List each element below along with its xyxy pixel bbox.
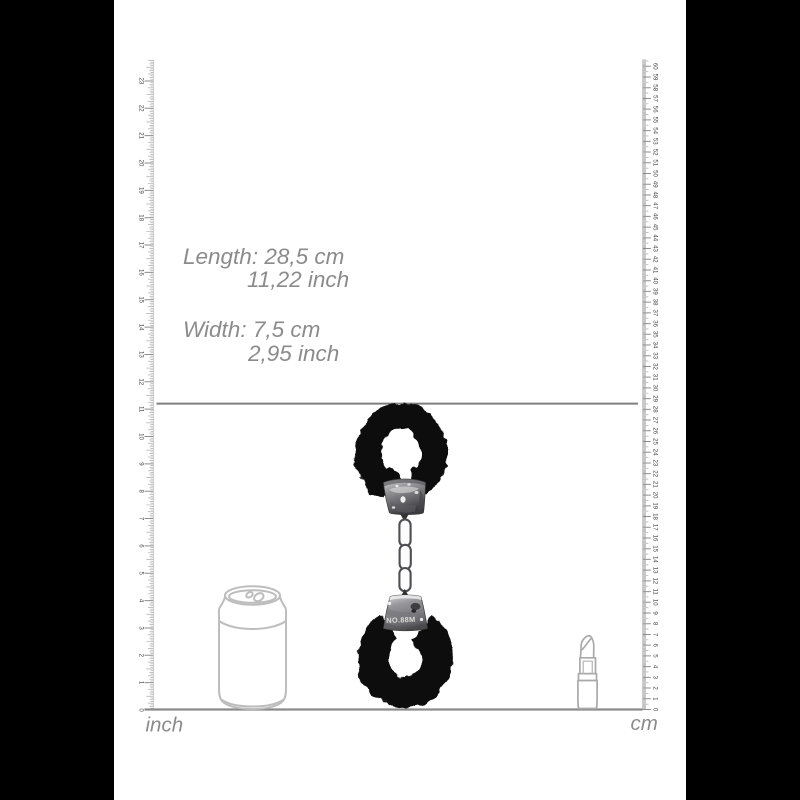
svg-text:12: 12 bbox=[651, 578, 658, 585]
svg-text:NO.88M: NO.88M bbox=[386, 615, 416, 625]
svg-text:22: 22 bbox=[138, 105, 145, 112]
svg-text:20: 20 bbox=[138, 160, 145, 167]
svg-text:52: 52 bbox=[651, 149, 658, 156]
svg-text:42: 42 bbox=[651, 256, 658, 263]
svg-text:54: 54 bbox=[651, 127, 658, 134]
svg-text:17: 17 bbox=[651, 524, 658, 531]
svg-text:28: 28 bbox=[651, 406, 658, 413]
svg-text:inch: inch bbox=[146, 714, 184, 737]
svg-text:51: 51 bbox=[651, 159, 658, 166]
svg-text:31: 31 bbox=[651, 374, 658, 381]
svg-text:59: 59 bbox=[651, 74, 658, 81]
svg-text:34: 34 bbox=[651, 342, 658, 349]
svg-text:55: 55 bbox=[651, 117, 658, 124]
svg-text:37: 37 bbox=[651, 310, 658, 317]
svg-text:11,22 inch: 11,22 inch bbox=[247, 267, 349, 292]
svg-text:48: 48 bbox=[651, 192, 658, 199]
svg-text:58: 58 bbox=[651, 84, 658, 91]
svg-text:14: 14 bbox=[651, 556, 658, 563]
svg-text:22: 22 bbox=[651, 470, 658, 477]
svg-text:53: 53 bbox=[651, 138, 658, 145]
svg-text:Length: 28,5 cm: Length: 28,5 cm bbox=[183, 244, 344, 269]
svg-text:12: 12 bbox=[138, 378, 145, 385]
svg-text:21: 21 bbox=[651, 481, 658, 488]
svg-text:16: 16 bbox=[651, 535, 658, 542]
svg-text:cm: cm bbox=[631, 712, 658, 735]
svg-text:60: 60 bbox=[651, 63, 658, 70]
svg-text:25: 25 bbox=[651, 438, 658, 445]
svg-text:14: 14 bbox=[138, 324, 145, 331]
svg-text:57: 57 bbox=[651, 95, 658, 102]
svg-text:50: 50 bbox=[651, 170, 658, 177]
svg-text:26: 26 bbox=[651, 427, 658, 434]
svg-text:43: 43 bbox=[651, 245, 658, 252]
svg-text:41: 41 bbox=[651, 267, 658, 274]
svg-text:44: 44 bbox=[651, 234, 658, 241]
svg-text:19: 19 bbox=[138, 187, 145, 194]
svg-text:20: 20 bbox=[651, 492, 658, 499]
svg-text:10: 10 bbox=[138, 433, 145, 440]
svg-text:18: 18 bbox=[138, 214, 145, 221]
svg-text:32: 32 bbox=[651, 363, 658, 370]
svg-text:23: 23 bbox=[651, 460, 658, 467]
svg-text:11: 11 bbox=[138, 406, 145, 413]
svg-text:21: 21 bbox=[138, 132, 145, 139]
svg-text:19: 19 bbox=[651, 502, 658, 509]
svg-text:13: 13 bbox=[138, 351, 145, 358]
svg-text:45: 45 bbox=[651, 224, 658, 231]
svg-text:39: 39 bbox=[651, 288, 658, 295]
svg-text:29: 29 bbox=[651, 395, 658, 402]
svg-text:16: 16 bbox=[138, 269, 145, 276]
svg-text:30: 30 bbox=[651, 385, 658, 392]
svg-text:47: 47 bbox=[651, 202, 658, 209]
svg-text:40: 40 bbox=[651, 277, 658, 284]
svg-text:11: 11 bbox=[651, 588, 658, 595]
svg-text:Width: 7,5 cm: Width: 7,5 cm bbox=[183, 317, 320, 342]
svg-text:56: 56 bbox=[651, 106, 658, 113]
svg-text:18: 18 bbox=[651, 513, 658, 520]
svg-text:2,95 inch: 2,95 inch bbox=[247, 341, 339, 366]
svg-text:46: 46 bbox=[651, 213, 658, 220]
svg-text:33: 33 bbox=[651, 352, 658, 359]
svg-text:17: 17 bbox=[138, 242, 145, 249]
svg-text:15: 15 bbox=[651, 545, 658, 552]
svg-text:23: 23 bbox=[138, 78, 145, 85]
svg-text:49: 49 bbox=[651, 181, 658, 188]
svg-text:38: 38 bbox=[651, 299, 658, 306]
svg-text:13: 13 bbox=[651, 567, 658, 574]
svg-text:10: 10 bbox=[651, 599, 658, 606]
svg-text:36: 36 bbox=[651, 320, 658, 327]
svg-text:15: 15 bbox=[138, 296, 145, 303]
svg-text:35: 35 bbox=[651, 331, 658, 338]
svg-text:24: 24 bbox=[651, 449, 658, 456]
svg-text:27: 27 bbox=[651, 417, 658, 424]
